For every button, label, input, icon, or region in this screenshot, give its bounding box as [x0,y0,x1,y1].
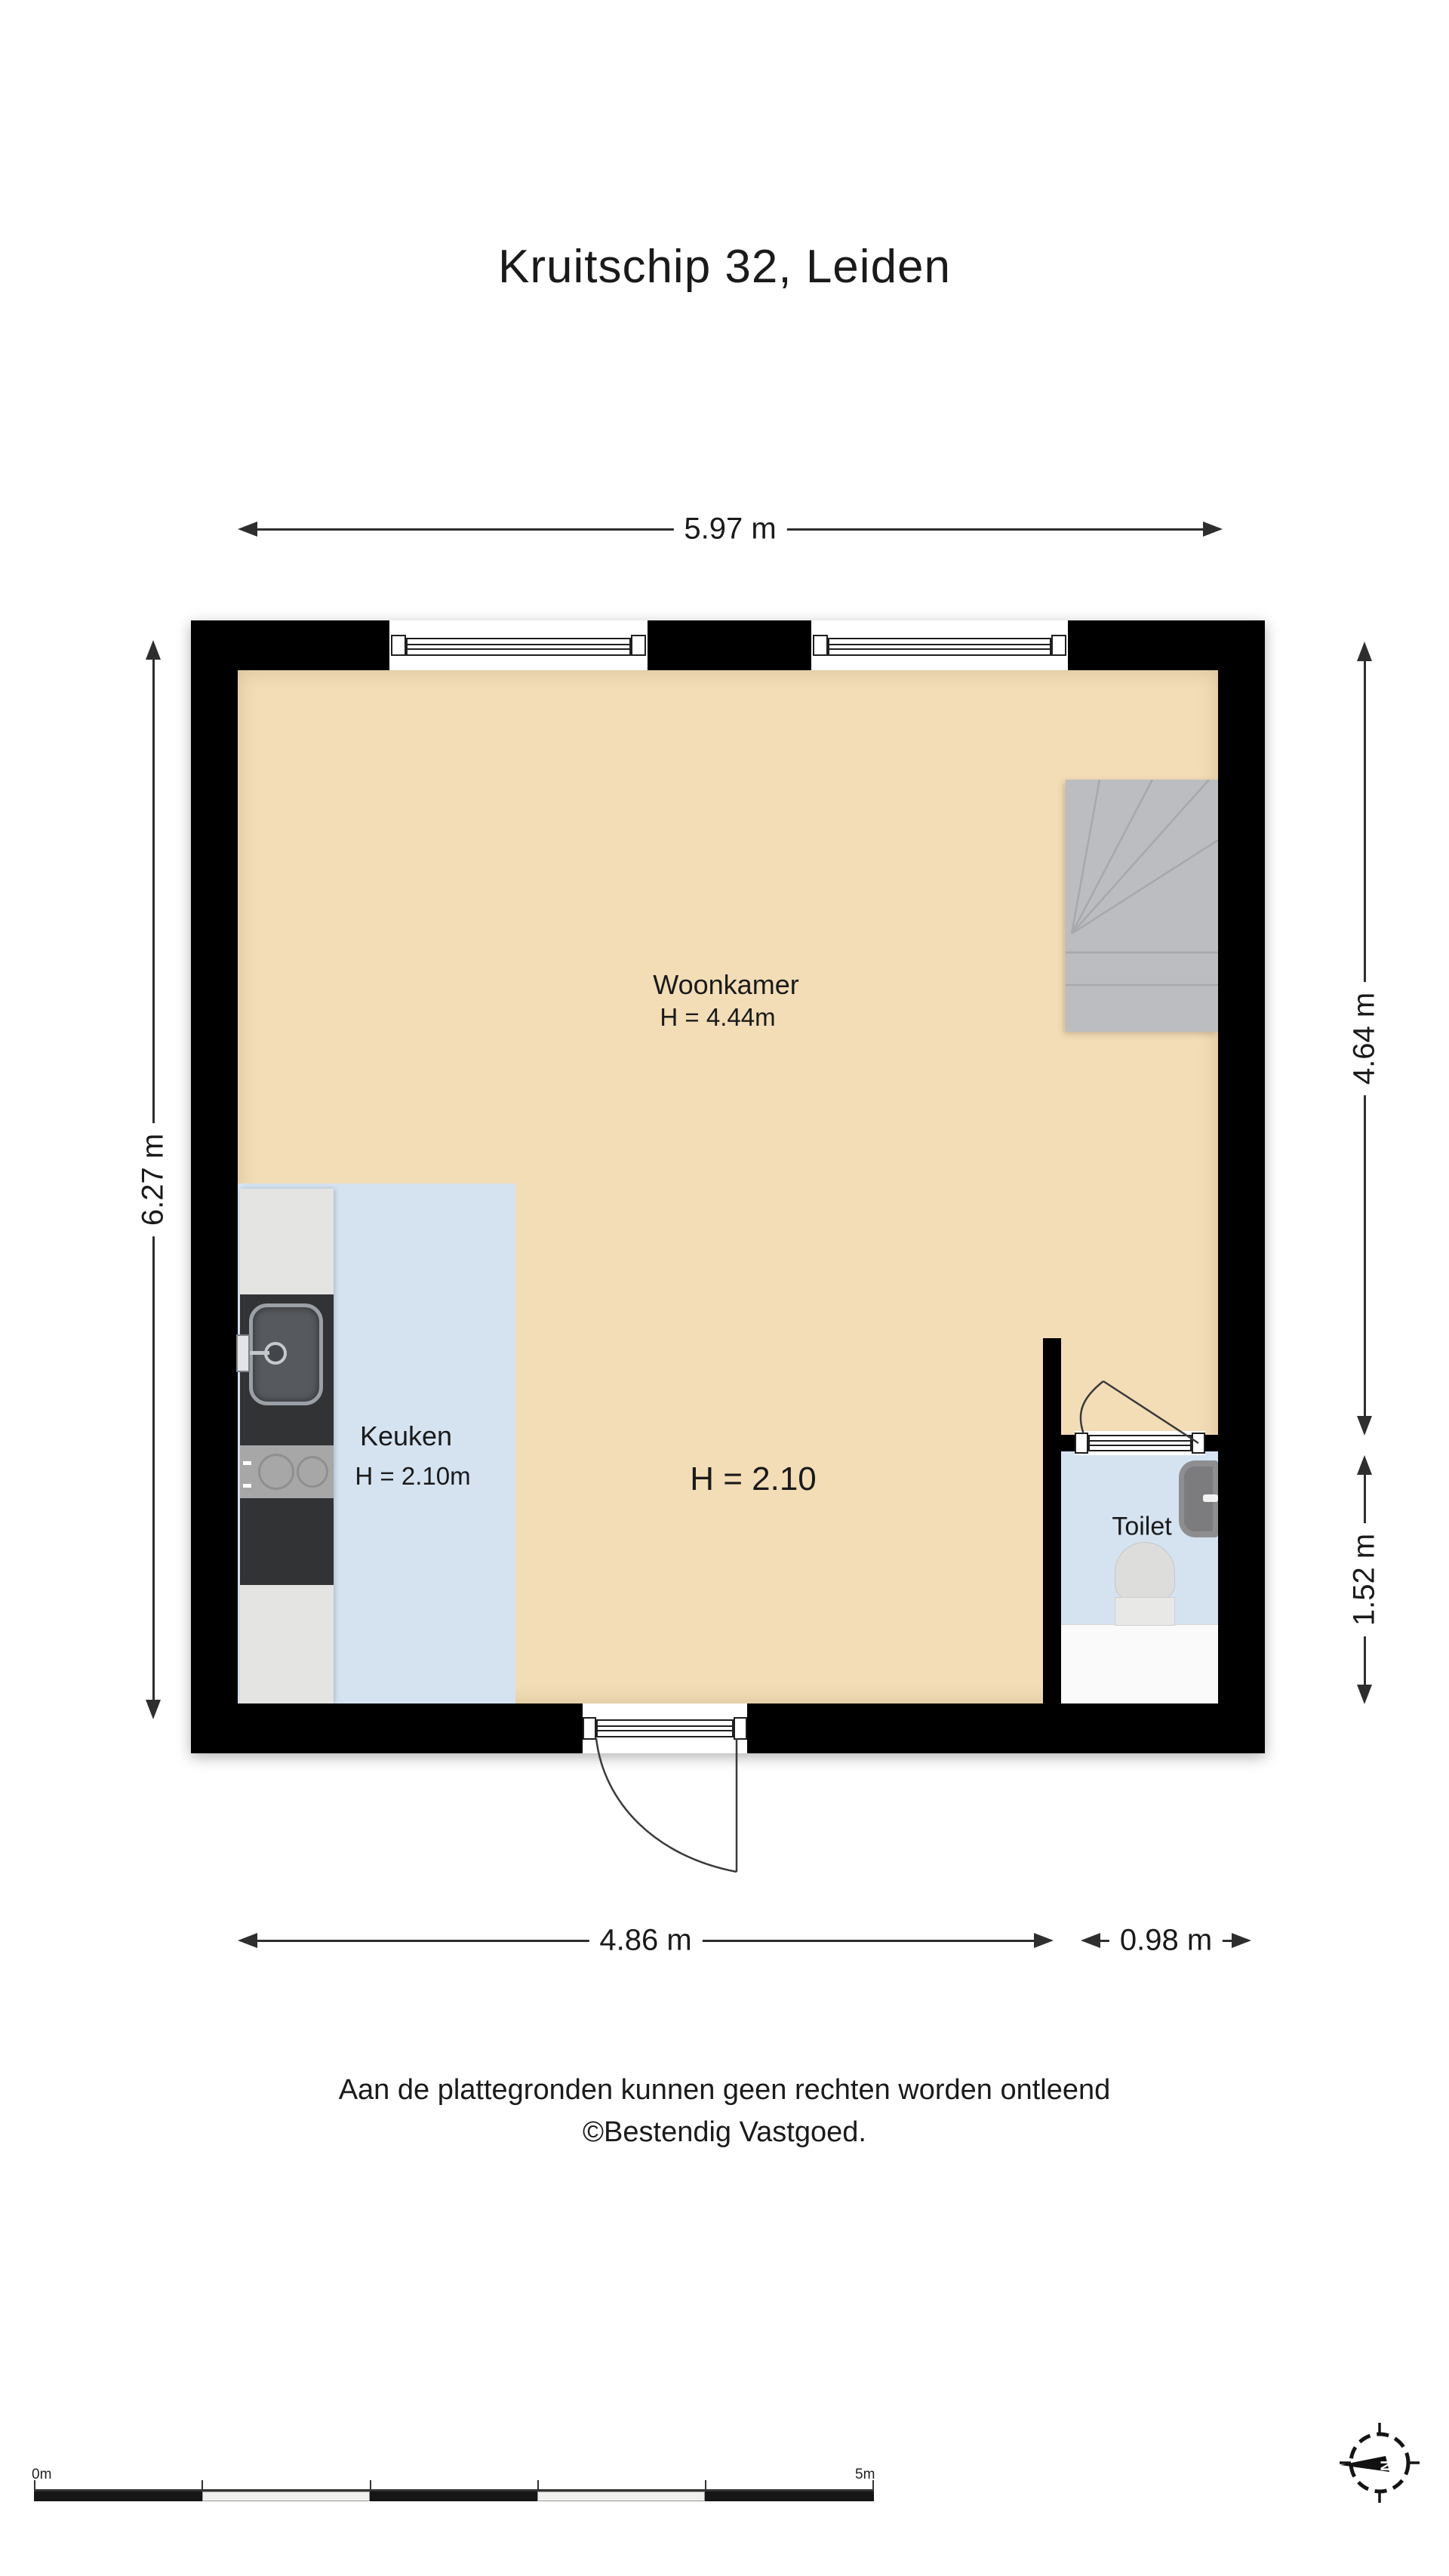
scalebar-segment [202,2491,370,2501]
scalebar-segment [34,2491,202,2501]
window-glazing-icon [828,638,1051,656]
dimension-left: 6.27 m [142,640,165,1719]
arrowhead-left-icon [238,1933,257,1948]
dimension-label: 0.98 m [1109,1922,1223,1959]
counter-cabinet-bottom [240,1585,334,1703]
dimension-label: 1.52 m [1346,1523,1383,1636]
arrowhead-up-icon [1357,1455,1372,1475]
toilet-bowl-icon [1115,1542,1175,1601]
toilet-shower-tray [1061,1624,1218,1703]
wall-left [191,620,238,1753]
faucet-spout-icon [250,1351,269,1355]
front-door-swing-icon [581,1732,755,1883]
dimension-label: 6.27 m [135,1123,172,1236]
arrowhead-right-icon [1034,1933,1054,1948]
page-title: Kruitschip 32, Leiden [0,240,1449,294]
scalebar-segment [705,2491,874,2501]
burner-icon [258,1454,294,1490]
cooktop-knob-icon [243,1461,251,1465]
ceiling-height-note: H = 2.10 [690,1460,817,1498]
compass-icon: N [1332,2415,1427,2510]
toilet-tank-icon [1115,1597,1175,1626]
scalebar-tick [370,2480,371,2491]
wall-top [191,620,1265,670]
dimension-label: 5.97 m [673,511,786,548]
window-jamb-icon [391,635,406,656]
counter-cabinet [240,1189,334,1294]
dimension-bottom-left: 4.86 m [238,1929,1054,1952]
toilet-door-swing-icon [1067,1365,1211,1451]
dimension-right-lower: 1.52 m [1353,1455,1376,1704]
scalebar-segment [537,2491,705,2501]
wall-right [1218,620,1265,1753]
window-jamb-icon [813,635,828,656]
window-jamb-icon [1051,635,1066,656]
dimension-bottom-right: 0.98 m [1081,1929,1251,1952]
window-glazing-icon [406,638,631,656]
arrowhead-down-icon [1357,1685,1372,1704]
wall-toilet-left [1043,1338,1061,1703]
cooktop-knob-icon [243,1484,251,1488]
stairs [1066,780,1218,1032]
room-height-woonkamer: H = 4.44m [660,1003,775,1032]
washbasin-faucet-icon [1203,1494,1218,1502]
burner-icon [297,1456,328,1488]
scalebar-tick [705,2480,706,2491]
arrowhead-down-icon [1357,1416,1372,1436]
scalebar-tick [34,2480,35,2491]
room-label-keuken: Keuken [360,1420,452,1452]
arrowhead-up-icon [1357,642,1372,661]
window-jamb-icon [631,635,646,656]
arrowhead-up-icon [146,640,161,660]
faucet-icon [236,1334,250,1372]
arrowhead-left-icon [1081,1933,1100,1948]
arrowhead-down-icon [146,1700,161,1719]
stairs-treads-icon [1066,780,1218,1032]
dimension-label: 4.64 m [1346,982,1383,1095]
room-label-woonkamer: Woonkamer [653,969,798,1001]
kitchen-counter [240,1189,334,1703]
arrowhead-right-icon [1232,1933,1251,1948]
arrowhead-right-icon [1203,522,1223,537]
room-label-toilet: Toilet [1112,1513,1171,1542]
room-height-keuken: H = 2.10m [355,1462,470,1491]
dimension-top: 5.97 m [238,518,1223,540]
disclaimer-line2: ©Bestendig Vastgoed. [0,2116,1449,2149]
compass-north-letter: N [1378,2461,1395,2471]
counter-dark-section [240,1498,334,1585]
arrowhead-left-icon [238,522,257,537]
window-1 [389,620,648,670]
dimension-right-upper: 4.64 m [1353,642,1376,1436]
disclaimer-line1: Aan de plattegronden kunnen geen rechten… [0,2074,1449,2107]
scalebar-tick [537,2480,539,2491]
scalebar-tick [872,2480,874,2491]
dimension-label: 4.86 m [589,1922,702,1959]
scalebar-segment [370,2491,537,2501]
window-2 [811,620,1068,670]
scalebar-tick [202,2480,203,2491]
